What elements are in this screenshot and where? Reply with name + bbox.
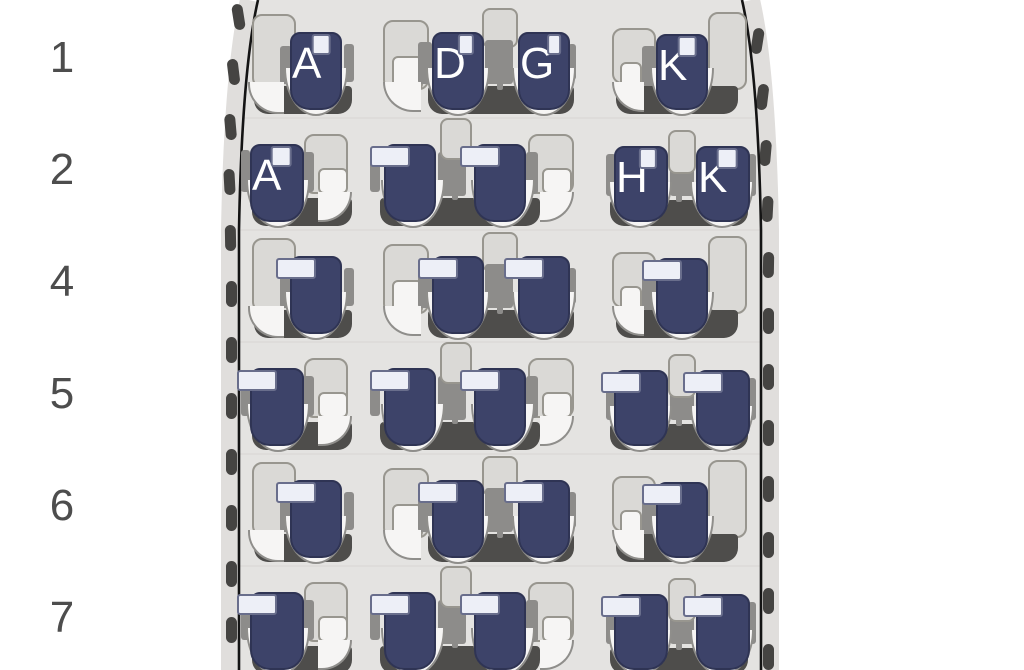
row-label-6: 6 <box>30 480 94 532</box>
cabin-window-mark <box>223 169 235 196</box>
ottoman-wing <box>540 640 574 670</box>
seat-divider <box>676 400 682 426</box>
seat-divider <box>497 288 503 314</box>
seat-divider <box>452 622 458 648</box>
cabin-window-mark <box>763 252 774 278</box>
seat-divider <box>676 624 682 650</box>
seat-pod-row4-center <box>378 230 578 344</box>
seat-footrest <box>237 370 277 391</box>
cabin-window-mark <box>763 476 774 502</box>
seat-pod-row2-left: A <box>246 118 358 232</box>
seat-2H[interactable]: H <box>614 146 668 222</box>
seat-footrest <box>547 34 561 55</box>
seat-footrest <box>642 260 682 281</box>
seat-divider <box>676 176 682 202</box>
seat-row6-center-1-occupied <box>432 480 484 558</box>
cabin-window-mark <box>226 449 237 475</box>
seat-row5-center-2-occupied <box>474 368 526 446</box>
seat-footrest <box>601 596 641 617</box>
seat-pod-row4-right <box>596 230 748 344</box>
ottoman-wing <box>612 306 644 336</box>
seat-row4-center-2-occupied <box>518 256 570 334</box>
cabin-window-mark <box>763 364 774 390</box>
side-table <box>318 168 348 194</box>
seat-footrest <box>642 484 682 505</box>
seat-row6-left-1-occupied <box>290 480 342 558</box>
side-table <box>542 392 572 418</box>
seat-1D[interactable]: D <box>432 32 484 110</box>
ottoman-wing <box>248 306 284 338</box>
seat-pod-row4-left <box>246 230 358 344</box>
seat-row5-right-2-occupied <box>696 370 750 446</box>
cabin-window-mark <box>225 225 236 251</box>
seat-shell <box>708 12 747 90</box>
seat-row6-right-1-occupied <box>656 482 708 558</box>
seat-footrest <box>418 482 458 503</box>
seat-row2-center-1-occupied <box>384 144 436 222</box>
side-table <box>318 616 348 642</box>
side-table <box>318 392 348 418</box>
seat-footrest <box>639 148 657 169</box>
seat-pod-row6-right <box>596 454 748 568</box>
cabin-window-mark <box>763 532 774 558</box>
cabin-window-mark <box>226 337 237 363</box>
seat-divider <box>452 398 458 424</box>
seat-footrest <box>370 370 410 391</box>
seat-1A[interactable]: A <box>290 32 342 110</box>
seat-pod-row6-center <box>378 454 578 568</box>
ottoman-wing <box>612 82 644 112</box>
seat-row6-center-2-occupied <box>518 480 570 558</box>
row-label-5: 5 <box>30 368 94 420</box>
seat-2K[interactable]: K <box>696 146 750 222</box>
seat-footrest <box>601 372 641 393</box>
seat-footrest <box>460 146 500 167</box>
ottoman-wing <box>540 192 574 222</box>
row-label-4: 4 <box>30 256 94 308</box>
ottoman-wing <box>248 82 284 114</box>
seat-footrest <box>460 370 500 391</box>
seat-row7-center-1-occupied <box>384 592 436 670</box>
seat-shell <box>708 460 747 538</box>
seat-footrest <box>460 594 500 615</box>
cabin-window-mark <box>763 588 774 614</box>
seat-pod-row2-center <box>378 118 578 232</box>
row-label-2: 2 <box>30 144 94 196</box>
cabin-window-mark <box>226 505 237 531</box>
cabin-window-mark <box>761 196 773 223</box>
seat-row5-left-1-occupied <box>250 368 304 446</box>
seat-shell <box>708 236 747 314</box>
ottoman-wing <box>540 416 574 446</box>
seat-row7-right-1-occupied <box>614 594 668 670</box>
seat-footrest <box>276 258 316 279</box>
seat-footrest <box>678 36 697 57</box>
seat-footrest <box>237 594 277 615</box>
seat-row5-center-1-occupied <box>384 368 436 446</box>
side-table <box>542 616 572 642</box>
seat-pod-row5-left <box>246 342 358 456</box>
seat-pod-row1-center: DG <box>378 6 578 120</box>
seat-pod-row2-right: HK <box>600 118 756 232</box>
cabin-window-mark <box>226 393 237 419</box>
seat-pod-row7-right <box>600 566 756 670</box>
seat-pod-row5-center <box>378 342 578 456</box>
seat-pod-row5-right <box>600 342 756 456</box>
seat-row4-center-1-occupied <box>432 256 484 334</box>
seat-2A[interactable]: A <box>250 144 304 222</box>
seat-divider <box>452 174 458 200</box>
seat-footrest <box>370 146 410 167</box>
seat-pod-row7-center <box>378 566 578 670</box>
ottoman-wing <box>612 530 644 560</box>
ottoman-wing <box>383 306 421 336</box>
ottoman-wing <box>383 530 421 560</box>
seat-row7-center-2-occupied <box>474 592 526 670</box>
seat-footrest <box>370 594 410 615</box>
row-label-1: 1 <box>30 32 94 84</box>
seat-divider <box>497 512 503 538</box>
cabin-window-mark <box>763 644 774 670</box>
seat-pod-row1-right: K <box>596 6 748 120</box>
privacy-screen <box>668 130 696 174</box>
seat-footrest <box>717 148 738 169</box>
seat-footrest <box>683 372 723 393</box>
seatmap-page: 124567 ADGKAHK Business <box>0 0 1024 670</box>
side-table <box>542 168 572 194</box>
seat-footrest <box>504 258 544 279</box>
seat-footrest <box>271 146 292 167</box>
cabin-window-mark <box>763 308 774 334</box>
seat-row7-right-2-occupied <box>696 594 750 670</box>
seat-footrest <box>312 34 331 55</box>
seat-pod-row1-left: A <box>246 6 358 120</box>
cabin-window-mark <box>226 561 237 587</box>
seat-footrest <box>276 482 316 503</box>
seat-footrest <box>458 34 474 55</box>
cabin-window-mark <box>763 420 774 446</box>
seat-divider <box>497 64 503 90</box>
seat-pod-row6-left <box>246 454 358 568</box>
seat-row2-center-2-occupied <box>474 144 526 222</box>
ottoman-wing <box>248 530 284 562</box>
ottoman-wing <box>383 82 421 112</box>
seat-1G[interactable]: G <box>518 32 570 110</box>
seat-row7-left-1-occupied <box>250 592 304 670</box>
row-label-7: 7 <box>30 592 94 644</box>
seat-row5-right-1-occupied <box>614 370 668 446</box>
seat-pod-row7-left <box>246 566 358 670</box>
seat-footrest <box>683 596 723 617</box>
seat-footrest <box>504 482 544 503</box>
seat-1K[interactable]: K <box>656 34 708 110</box>
seat-footrest <box>418 258 458 279</box>
seat-row4-left-1-occupied <box>290 256 342 334</box>
cabin-window-mark <box>226 281 237 307</box>
seat-row4-right-1-occupied <box>656 258 708 334</box>
cabin-window-mark <box>226 617 237 643</box>
